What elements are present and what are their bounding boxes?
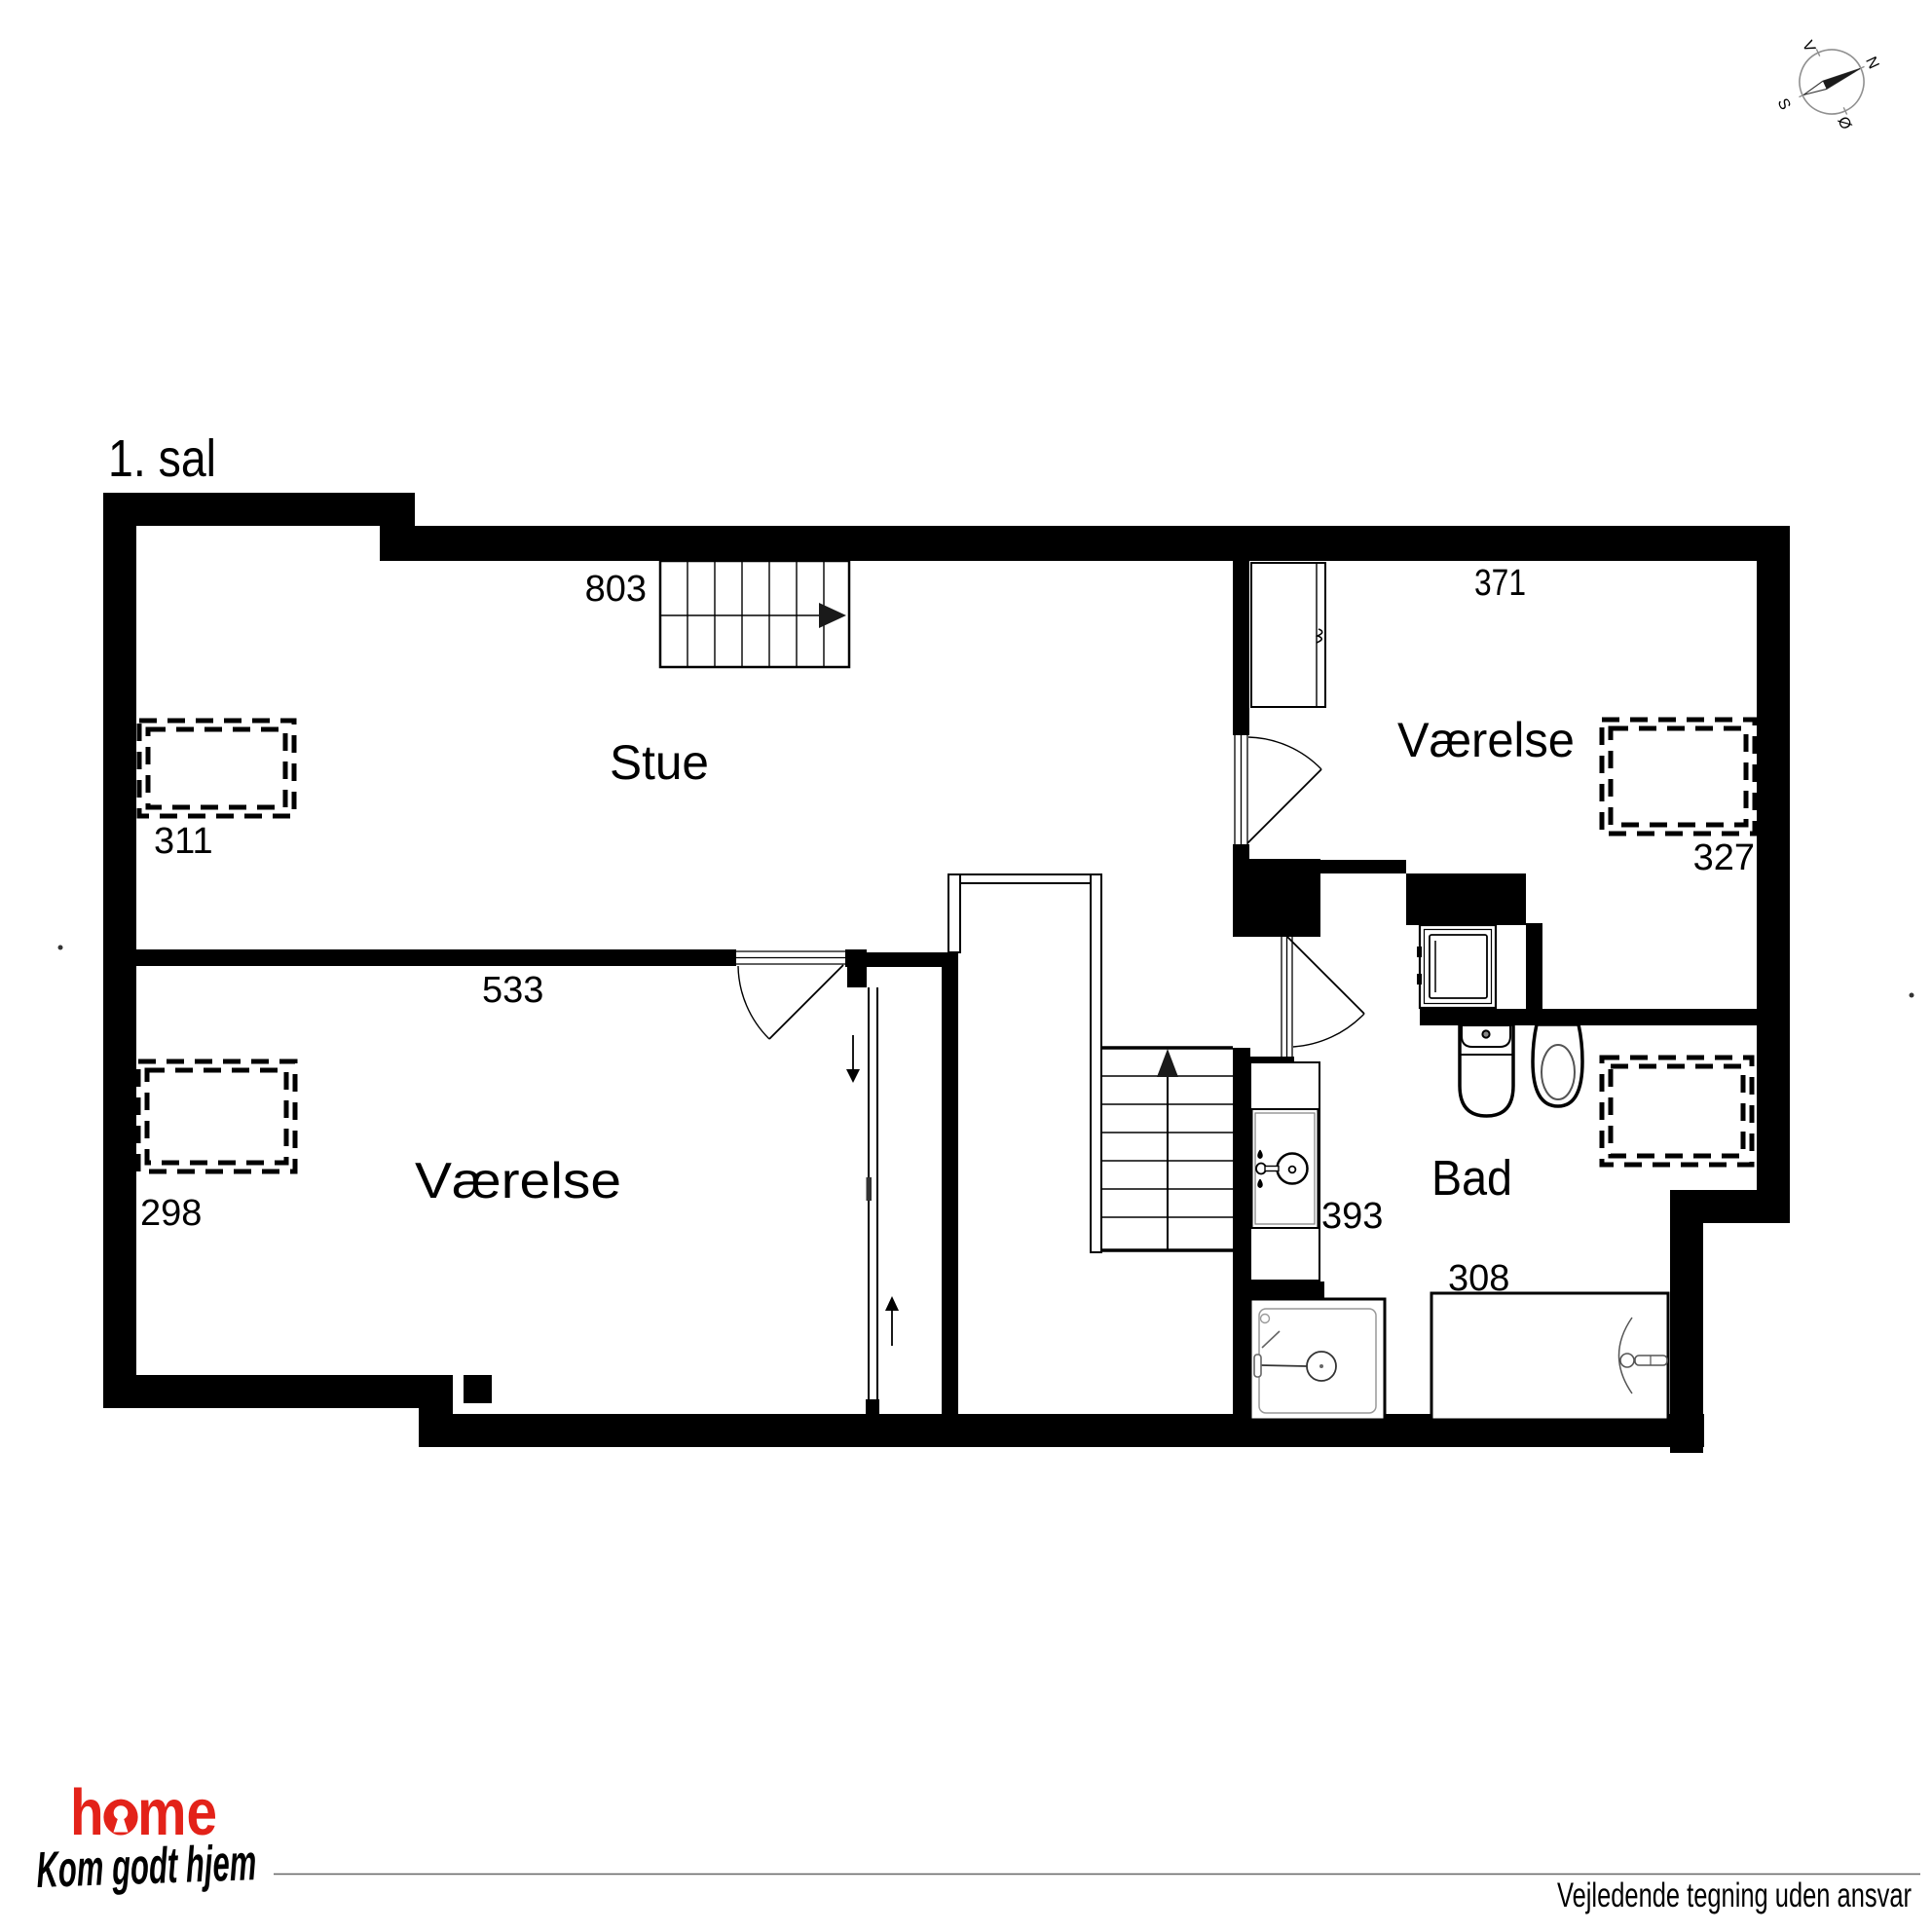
svg-text:1. sal: 1. sal [108, 429, 216, 488]
svg-text:Bad: Bad [1431, 1150, 1512, 1206]
svg-text:533: 533 [482, 970, 543, 1011]
svg-text:298: 298 [140, 1193, 202, 1234]
svg-text:803: 803 [585, 569, 647, 610]
svg-text:Værelse: Værelse [1397, 713, 1575, 767]
svg-text:327: 327 [1693, 837, 1755, 878]
svg-text:Stue: Stue [610, 735, 709, 790]
svg-text:Vejledende tegning uden ansvar: Vejledende tegning uden ansvar [1557, 1876, 1912, 1914]
svg-text:393: 393 [1321, 1196, 1383, 1237]
svg-text:311: 311 [154, 821, 213, 862]
svg-text:371: 371 [1474, 563, 1526, 604]
svg-text:Værelse: Værelse [415, 1153, 621, 1209]
svg-text:Kom godt hjem: Kom godt hjem [35, 1835, 257, 1899]
